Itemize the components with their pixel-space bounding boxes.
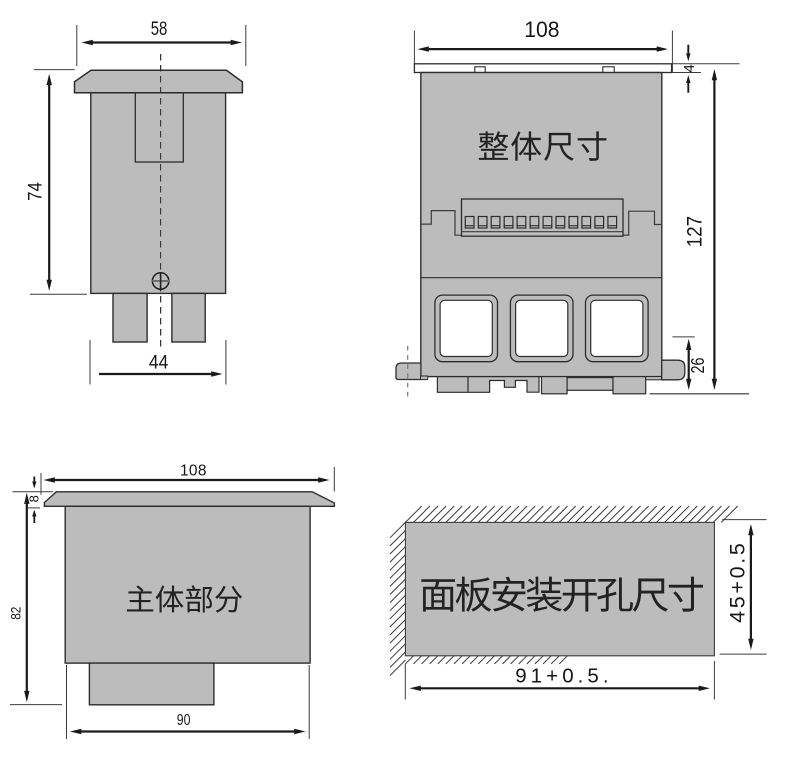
svg-text:45+0.5: 45+0.5	[725, 543, 749, 623]
svg-text:44: 44	[149, 353, 169, 374]
svg-text:26: 26	[688, 358, 708, 374]
svg-text:127: 127	[683, 216, 706, 247]
svg-text:4: 4	[681, 64, 698, 72]
svg-text:82: 82	[7, 606, 23, 619]
svg-text:74: 74	[26, 182, 47, 201]
svg-text:90: 90	[177, 712, 191, 729]
svg-text:108: 108	[524, 17, 559, 42]
svg-text:8: 8	[27, 495, 42, 502]
svg-text:58: 58	[151, 19, 168, 40]
svg-text:108: 108	[180, 462, 207, 479]
